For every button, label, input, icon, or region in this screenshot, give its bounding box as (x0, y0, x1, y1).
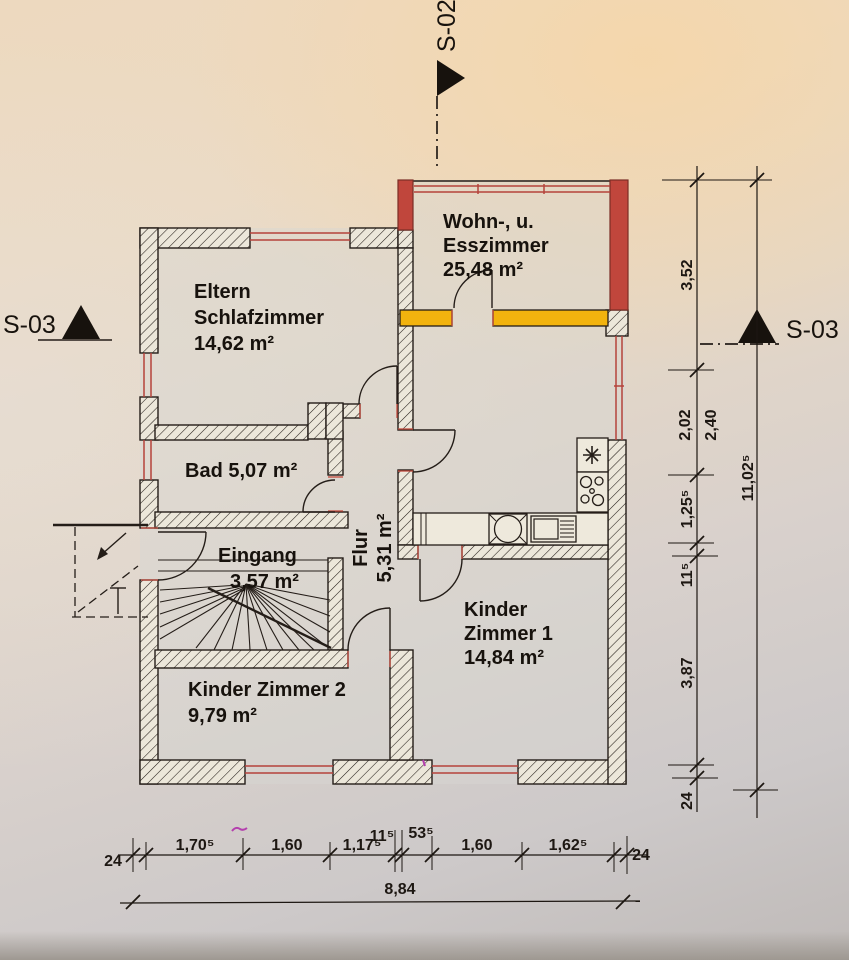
section-triangle-icon (62, 305, 100, 339)
room-label-bad: Bad 5,07 m² (185, 460, 298, 482)
svg-text:S-03: S-03 (3, 311, 56, 339)
svg-text:53⁵: 53⁵ (408, 825, 433, 842)
svg-text:1,60: 1,60 (461, 837, 492, 854)
svg-text:Schlafzimmer: Schlafzimmer (194, 307, 324, 329)
svg-text:3,52: 3,52 (679, 259, 696, 290)
section-marker-right: S-03 (700, 309, 839, 344)
svg-text:Eingang: Eingang (218, 545, 297, 567)
svg-text:24: 24 (104, 853, 122, 870)
svg-text:Wohn-, u.: Wohn-, u. (443, 211, 534, 233)
section-marker-top: S-02 (433, 0, 465, 168)
stove-icon (577, 472, 608, 512)
svg-text:25,48 m²: 25,48 m² (443, 259, 523, 281)
section-flag-icon (437, 60, 465, 96)
dimension-chain-bottom: 24 1,70⁵ 1,60 1,17⁵ 11⁵ 53⁵ 1,60 1,62⁵ 2… (104, 825, 650, 909)
svg-text:Flur: Flur (350, 529, 372, 567)
svg-text:Zimmer 1: Zimmer 1 (464, 623, 553, 645)
svg-text:1,70⁵: 1,70⁵ (176, 837, 215, 854)
svg-text:2,40: 2,40 (703, 409, 720, 440)
svg-text:3,57 m²: 3,57 m² (230, 571, 299, 593)
svg-text:1,25⁵: 1,25⁵ (679, 490, 696, 529)
svg-text:11⁵: 11⁵ (370, 828, 394, 845)
svg-text:S-03: S-03 (786, 316, 839, 344)
svg-text:1,60: 1,60 (271, 837, 302, 854)
svg-text:24: 24 (679, 792, 696, 810)
svg-text:11⁵: 11⁵ (679, 563, 696, 587)
svg-text:1,62⁵: 1,62⁵ (549, 837, 588, 854)
svg-text:Bad 5,07 m²: Bad 5,07 m² (185, 460, 298, 482)
svg-text:Esszimmer: Esszimmer (443, 235, 549, 257)
sink-icon (489, 514, 527, 544)
svg-text:Kinder Zimmer 2: Kinder Zimmer 2 (188, 679, 346, 701)
orange-highlight-wall (400, 310, 608, 326)
svg-text:Kinder: Kinder (464, 599, 528, 621)
entrance-porch (53, 525, 148, 617)
svg-text:8,84: 8,84 (384, 881, 415, 898)
svg-text:S-02: S-02 (433, 0, 461, 52)
svg-text:3,87: 3,87 (679, 657, 696, 688)
fridge-icon (577, 438, 608, 472)
svg-text:11,02⁵: 11,02⁵ (740, 455, 757, 502)
svg-text:24: 24 (632, 847, 650, 864)
svg-text:5,31 m²: 5,31 m² (374, 513, 396, 582)
svg-text:2,02: 2,02 (677, 409, 694, 440)
chimney-shaft (308, 403, 343, 439)
svg-text:14,62 m²: 14,62 m² (194, 333, 274, 355)
entrance-arrow-icon (97, 533, 126, 614)
svg-text:Eltern: Eltern (194, 281, 251, 303)
svg-text:9,79 m²: 9,79 m² (188, 705, 257, 727)
svg-text:14,84 m²: 14,84 m² (464, 647, 544, 669)
pen-mark (232, 828, 247, 831)
dimension-chain-right: 3,52 2,02 2,40 1,25⁵ 11⁵ 3,87 24 11,02⁵ (662, 166, 778, 818)
scanned-plan-page: Wohn-, u. Esszimmer 25,48 m² Eltern Schl… (0, 0, 849, 960)
floor-plan-drawing: Wohn-, u. Esszimmer 25,48 m² Eltern Schl… (0, 0, 849, 960)
section-marker-left: S-03 (3, 305, 112, 340)
dishwasher-icon (531, 516, 576, 542)
